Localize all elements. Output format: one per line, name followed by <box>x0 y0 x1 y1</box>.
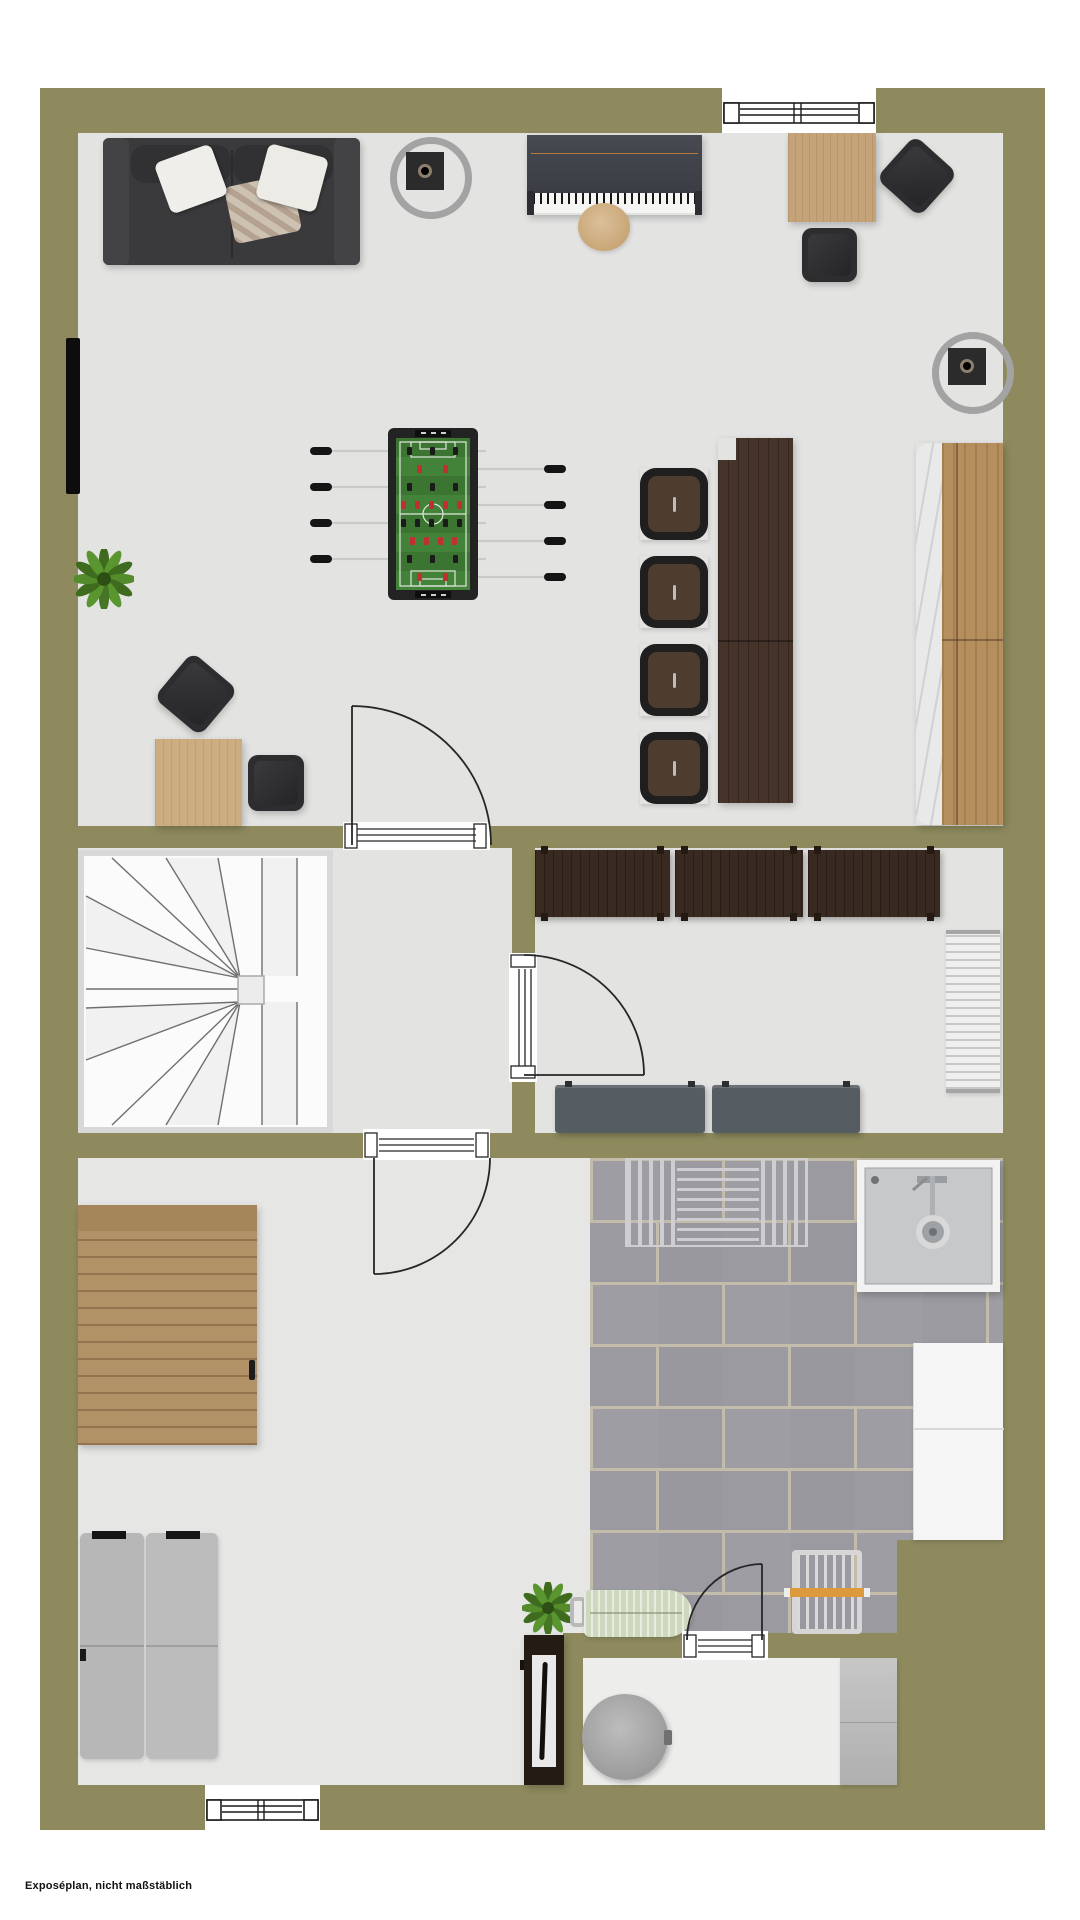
bench-foot <box>688 1081 695 1087</box>
ironing-board-seam <box>590 1612 682 1614</box>
interior-wall-b <box>40 1133 1045 1158</box>
footer-note: Exposéplan, nicht maßstäblich <box>25 1880 192 1892</box>
sideboard-foot <box>814 846 821 854</box>
sideboard-foot <box>814 913 821 921</box>
sideboard-foot <box>681 913 688 921</box>
grate-bars-right <box>761 1160 806 1245</box>
sideboard-foot <box>927 846 934 854</box>
grate-bars-middle <box>677 1164 759 1241</box>
sideboard-foot <box>681 846 688 854</box>
bench-1 <box>555 1085 705 1133</box>
winder-staircase <box>78 850 333 1133</box>
slatted-cabinet-top-band <box>78 1205 257 1231</box>
foosball-table <box>308 428 568 600</box>
sideboard-foot <box>541 913 548 921</box>
cube-stool-3 <box>248 755 304 811</box>
hall-partition-lower <box>512 1082 535 1158</box>
sideboard-1 <box>535 850 670 917</box>
chair-stitch <box>673 585 676 600</box>
long-table-notch <box>718 438 736 460</box>
piano-body <box>527 135 702 193</box>
grate-bars-left <box>627 1160 675 1245</box>
long-table <box>718 438 793 803</box>
study-cabinet-seam <box>840 1722 897 1723</box>
sideboard-foot <box>927 913 934 921</box>
armchair-side-notch <box>80 1649 86 1661</box>
long-table-seam <box>718 640 793 642</box>
wardrobe-marble-side <box>916 443 944 825</box>
wardrobe-wood-front <box>942 443 1003 825</box>
sideboard-3 <box>808 850 940 917</box>
floor-grate <box>625 1158 808 1247</box>
bench-2 <box>712 1085 860 1133</box>
outer-wall-top <box>40 88 1045 133</box>
piano-cheek-left <box>527 191 534 215</box>
sideboard-foot <box>657 913 664 921</box>
piano-stool <box>578 203 630 251</box>
piano-cheek-right <box>695 191 702 215</box>
sofa <box>103 138 360 265</box>
piano-accent-line <box>531 153 698 154</box>
mirror-shelf <box>524 1635 564 1785</box>
chair-stitch <box>673 761 676 776</box>
bench-foot <box>843 1081 850 1087</box>
armchair-seam <box>146 1645 218 1647</box>
dining-chair-3 <box>640 644 708 716</box>
speaker-cone-2 <box>960 359 974 373</box>
sideboard-foot <box>790 913 797 921</box>
speaker-cone <box>418 164 432 178</box>
plant-icon <box>74 549 134 609</box>
sideboard-2 <box>675 850 803 917</box>
mirror-shelf-notch <box>520 1660 524 1670</box>
round-chair <box>582 1694 668 1780</box>
sofa-armrest-left <box>103 138 129 265</box>
radiator <box>946 930 1000 1093</box>
utility-sink <box>857 1160 1000 1292</box>
floorplan-canvas: Exposéplan, nicht maßstäblich <box>0 0 1080 1920</box>
slatted-cabinet <box>78 1205 257 1445</box>
armchair-left <box>80 1533 144 1759</box>
bench-foot <box>722 1081 729 1087</box>
armchair-top-bar <box>92 1531 126 1539</box>
dining-chair-1 <box>640 468 708 540</box>
drying-rack-bar <box>784 1588 870 1597</box>
side-table <box>155 739 242 826</box>
hall-partition-upper <box>512 848 535 953</box>
sideboard-foot <box>657 846 664 854</box>
bench-foot <box>565 1081 572 1087</box>
cube-stool <box>802 228 857 282</box>
round-chair-handle <box>664 1730 672 1745</box>
ironing-board <box>584 1590 692 1637</box>
sink-graphic <box>857 1160 1000 1292</box>
outer-wall-bottom <box>40 1785 1045 1830</box>
armchair-right <box>146 1533 218 1759</box>
sideboard-foot <box>790 846 797 854</box>
study-cabinet <box>840 1658 897 1785</box>
plant-icon-2 <box>522 1582 574 1634</box>
wardrobe-seam <box>942 639 1003 641</box>
appliance-cabinet <box>913 1343 1003 1540</box>
interior-wall-a <box>40 826 1045 848</box>
sideboard-foot <box>541 846 548 854</box>
chair-stitch <box>673 673 676 688</box>
study-left-wall <box>563 1633 583 1785</box>
sofa-armrest-right <box>334 138 360 265</box>
dining-chair-4 <box>640 732 708 804</box>
piano <box>527 135 702 215</box>
ceiling-speaker-box <box>406 152 444 190</box>
wardrobe-groove <box>956 443 958 825</box>
appliance-seam <box>914 1428 1004 1430</box>
ceiling-speaker-box-2 <box>948 348 986 385</box>
bottom-right-wall-block <box>897 1540 1045 1830</box>
slatted-cabinet-handle <box>249 1360 255 1380</box>
wall-tv <box>66 338 80 494</box>
dining-chair-2 <box>640 556 708 628</box>
armchair-seam <box>80 1645 144 1647</box>
chair-stitch <box>673 497 676 512</box>
wardrobe <box>916 443 1003 825</box>
desk <box>788 133 876 222</box>
armchair-top-bar <box>166 1531 200 1539</box>
